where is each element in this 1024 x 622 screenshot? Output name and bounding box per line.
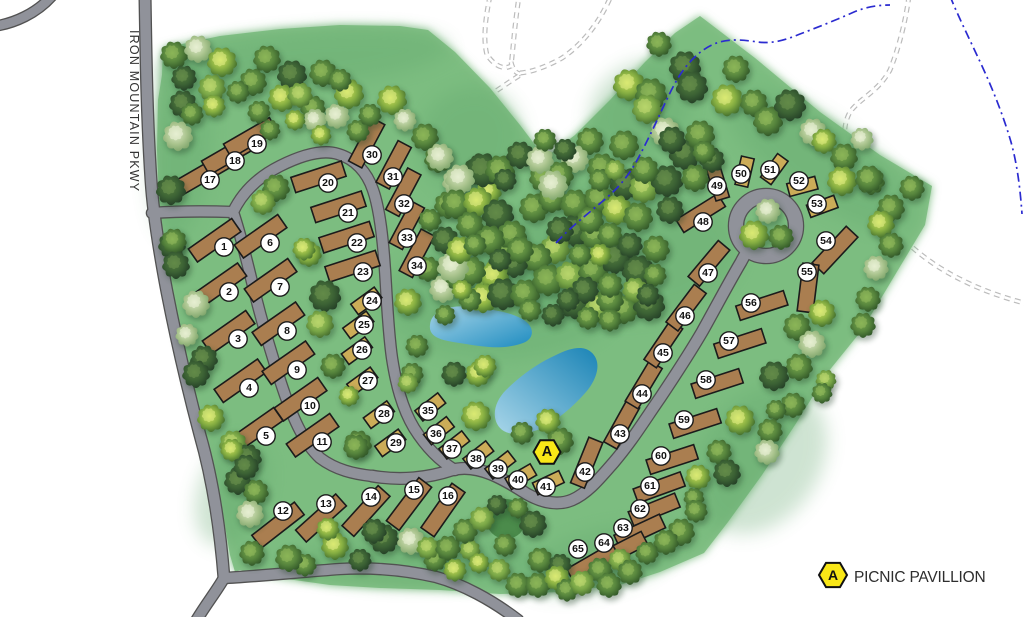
svg-text:29: 29: [390, 437, 402, 449]
svg-text:11: 11: [316, 436, 327, 448]
svg-text:65: 65: [572, 543, 584, 555]
svg-text:37: 37: [446, 443, 458, 455]
svg-text:A: A: [542, 444, 553, 460]
svg-text:28: 28: [378, 408, 390, 420]
svg-text:63: 63: [617, 522, 629, 534]
svg-text:1: 1: [221, 241, 227, 253]
svg-text:6: 6: [267, 237, 273, 249]
svg-text:24: 24: [366, 295, 378, 307]
svg-text:10: 10: [304, 400, 316, 412]
svg-text:20: 20: [322, 177, 334, 189]
svg-text:22: 22: [351, 237, 363, 249]
svg-text:44: 44: [636, 388, 648, 400]
svg-text:18: 18: [229, 155, 241, 167]
svg-text:41: 41: [540, 481, 552, 493]
svg-text:7: 7: [277, 281, 283, 293]
svg-text:60: 60: [655, 450, 667, 462]
svg-text:45: 45: [657, 347, 669, 359]
svg-text:27: 27: [362, 375, 374, 387]
svg-text:34: 34: [411, 260, 423, 272]
svg-text:55: 55: [801, 266, 813, 278]
svg-text:61: 61: [644, 480, 656, 492]
svg-text:14: 14: [365, 491, 377, 503]
svg-text:39: 39: [492, 463, 504, 475]
svg-text:21: 21: [342, 207, 354, 219]
svg-text:52: 52: [793, 175, 805, 187]
svg-text:9: 9: [294, 364, 300, 376]
svg-text:57: 57: [723, 335, 735, 347]
svg-text:51: 51: [764, 164, 776, 176]
svg-text:23: 23: [357, 266, 369, 278]
svg-text:40: 40: [512, 474, 524, 486]
svg-text:49: 49: [711, 180, 723, 192]
svg-text:15: 15: [408, 484, 420, 496]
svg-text:58: 58: [700, 374, 712, 386]
svg-text:A: A: [828, 567, 838, 583]
svg-text:59: 59: [678, 414, 690, 426]
svg-text:8: 8: [284, 325, 290, 337]
svg-text:4: 4: [246, 382, 252, 394]
svg-text:46: 46: [679, 310, 691, 322]
svg-text:47: 47: [702, 267, 714, 279]
svg-text:32: 32: [398, 198, 410, 210]
svg-text:25: 25: [358, 319, 370, 331]
svg-text:36: 36: [430, 428, 442, 440]
svg-text:50: 50: [735, 168, 747, 180]
svg-text:5: 5: [263, 430, 269, 442]
svg-text:54: 54: [820, 235, 832, 247]
svg-text:30: 30: [366, 149, 378, 161]
svg-text:13: 13: [320, 498, 332, 510]
svg-text:17: 17: [204, 174, 216, 186]
svg-text:64: 64: [598, 537, 610, 549]
svg-text:19: 19: [251, 138, 263, 150]
svg-text:62: 62: [634, 503, 646, 515]
svg-text:53: 53: [811, 198, 823, 210]
svg-text:56: 56: [745, 297, 757, 309]
svg-text:PICNIC PAVILLION: PICNIC PAVILLION: [854, 569, 985, 586]
svg-text:12: 12: [277, 505, 289, 517]
svg-text:48: 48: [697, 216, 709, 228]
svg-text:38: 38: [470, 453, 482, 465]
svg-text:IRON MOUNTAIN PKWY: IRON MOUNTAIN PKWY: [127, 30, 141, 192]
svg-text:42: 42: [579, 466, 591, 478]
svg-text:3: 3: [235, 333, 241, 345]
svg-text:31: 31: [387, 171, 399, 183]
svg-text:35: 35: [422, 405, 434, 417]
svg-text:33: 33: [401, 232, 413, 244]
svg-text:16: 16: [442, 490, 454, 502]
svg-text:43: 43: [614, 428, 626, 440]
svg-text:2: 2: [226, 286, 232, 298]
svg-text:26: 26: [356, 344, 368, 356]
